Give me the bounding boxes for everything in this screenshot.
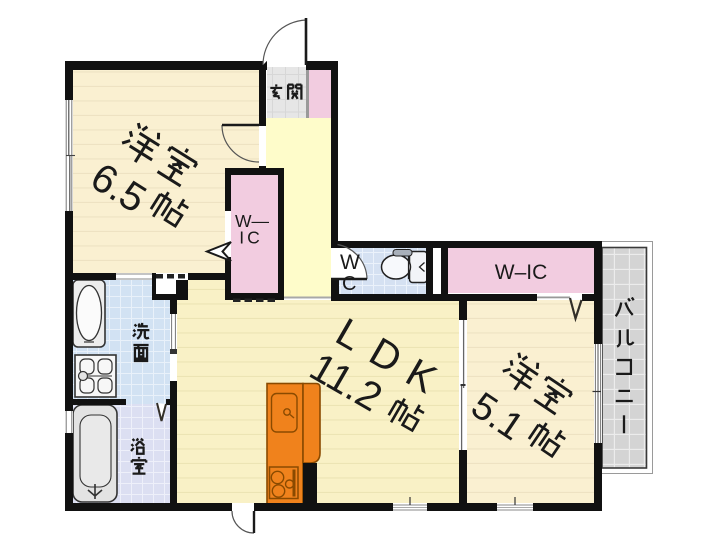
svg-text:W–IC: W–IC [495,261,548,284]
svg-text:IC: IC [239,228,263,248]
svg-text:W: W [340,251,360,274]
svg-text:C: C [342,273,356,295]
